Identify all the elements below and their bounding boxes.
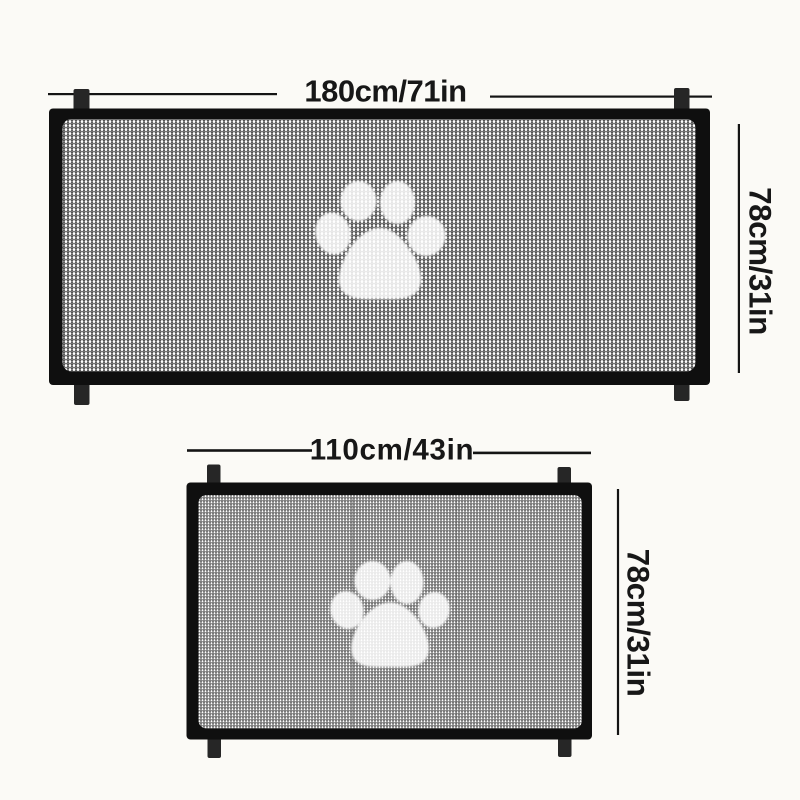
svg-text:180cm/71in: 180cm/71in [304, 74, 466, 109]
svg-text:78cm/31in: 78cm/31in [621, 549, 657, 697]
svg-text:110cm/43in: 110cm/43in [310, 434, 474, 467]
svg-text:78cm/31in: 78cm/31in [743, 187, 779, 335]
